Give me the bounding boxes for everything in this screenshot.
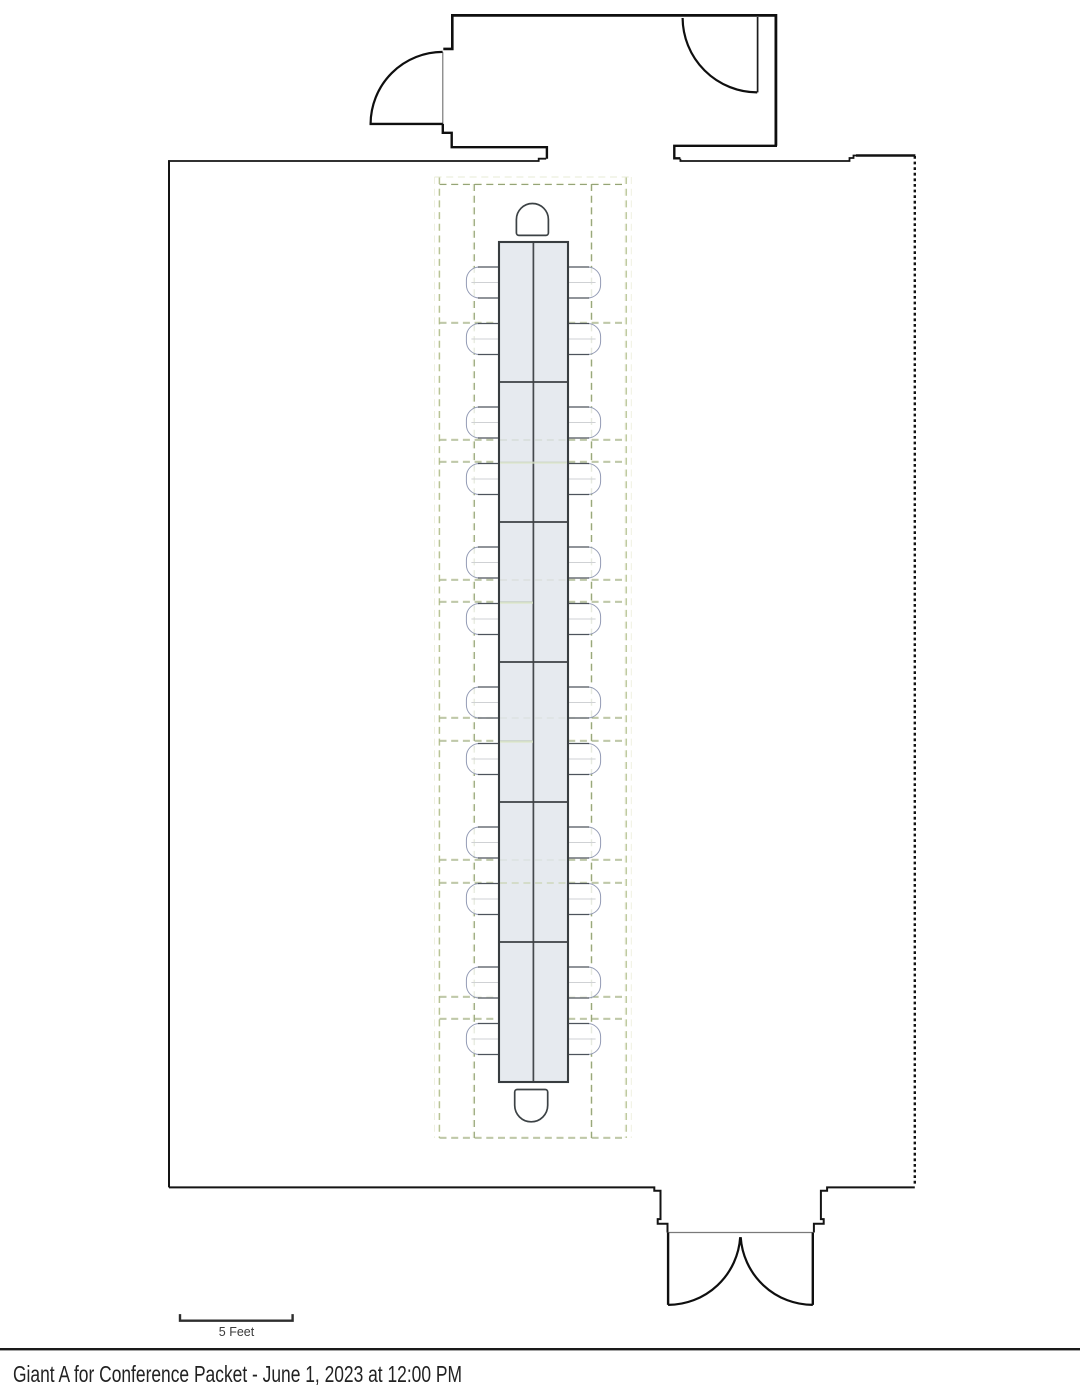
svg-text:Giant A for Conference Packet: Giant A for Conference Packet - June 1, … bbox=[13, 1361, 462, 1387]
svg-text:5 Feet: 5 Feet bbox=[219, 1325, 255, 1339]
